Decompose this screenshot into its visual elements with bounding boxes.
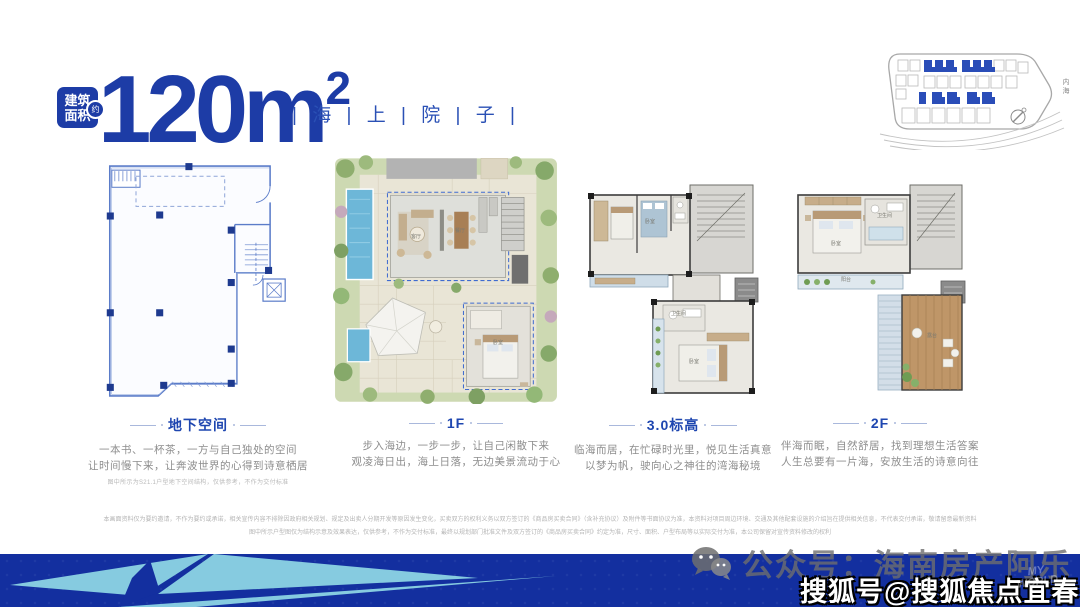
room-label-bath: 卫生间: [671, 311, 686, 317]
wechat-icon: [690, 545, 732, 581]
caption-level3-line1: 临海而居，在忙碌时光里，悦见生活真意: [570, 442, 776, 458]
caption-basement-line1: 一本书、一杯茶，一方与自己独处的空间: [82, 442, 314, 458]
caption-1f-line2: 观凌海日出，海上日落，无边美景流动于心: [340, 454, 572, 470]
caption-basement-title-text: 地下空间: [168, 415, 228, 435]
project-name: | 海 | 上 | 院 | 子 |: [292, 100, 520, 127]
caption-level3-title: 3.0标高: [570, 415, 776, 435]
caption-level3-title-text: 3.0标高: [647, 415, 699, 435]
caption-basement-body: 一本书、一杯茶，一方与自己独处的空间 让时间慢下来，让奔波世界的心得到诗意栖居: [82, 442, 314, 474]
caption-level3-body: 临海而居，在忙碌时光里，悦见生活真意 以梦为帆，驶向心之神往的湾海秘境: [570, 442, 776, 474]
sump-box: [263, 279, 285, 301]
room-label-master-bedroom: 卧室: [831, 241, 841, 247]
caption-2f-line1: 伴海而眠，自然舒居，找到理想生活答案: [772, 438, 988, 454]
area-number: 120m: [98, 56, 324, 163]
sail-logo: [0, 548, 580, 607]
disclaimer-line2: 图中所示户型图仅为结构示意及效果表达，仅供参考，不作为交付标准，最终以规划部门批…: [0, 527, 1080, 539]
room-label-dining: 餐厅: [455, 228, 465, 234]
disclaimer-line1: 本画面资料仅为要约邀请，不作为要约或承诺，相关宣传内容不排除因政府相关规划、规定…: [0, 514, 1080, 526]
caption-2f-title: 2F: [772, 415, 988, 431]
level-3-floorplan: 卧室 卫生间 卧室: [585, 183, 760, 398]
caption-2f-body: 伴海而眠，自然舒居，找到理想生活答案 人生总要有一片海，安放生活的诗意向往: [772, 438, 988, 470]
upper-bedrooms-block: [590, 195, 690, 287]
caption-level3: 3.0标高 临海而居，在忙碌时光里，悦见生活真意 以梦为帆，驶向心之神往的湾海秘…: [570, 415, 776, 474]
site-plan-graphic: [872, 42, 1072, 150]
caption-2f-line2: 人生总要有一片海，安放生活的诗意向往: [772, 454, 988, 470]
room-label-living: 客厅: [411, 234, 421, 240]
stair-block: [690, 185, 753, 273]
lower-bedroom-block: [653, 301, 753, 393]
basement-floorplan: [95, 152, 303, 404]
room-label-bedroom3: 卧室: [689, 359, 699, 365]
room-label-bath-2f: 卫生间: [877, 213, 892, 219]
sea-label: 内海: [1060, 78, 1070, 96]
stairs: [501, 197, 524, 250]
room-label-terrace: 露台: [927, 333, 937, 339]
room-label-bedroom2: 卧室: [645, 219, 655, 225]
caption-1f: 1F 步入海边，一步一步，让自己闲散下来 观凌海日出，海上日落，无边美景流动于心: [340, 415, 572, 470]
area-value: 120m2: [98, 38, 351, 160]
page: 建筑 面积 约 120m2 | 海 | 上 | 院 | 子 |: [0, 0, 1080, 607]
room-label-balcony: 阳台: [841, 277, 851, 283]
stair-block-2f: [910, 185, 962, 269]
master-suite: [798, 195, 910, 289]
room-label-bedroom: 卧室: [493, 340, 503, 346]
corridor: [673, 275, 720, 303]
caption-1f-title: 1F: [340, 415, 572, 431]
caption-2f-title-text: 2F: [871, 415, 889, 431]
second-floor-plan: 卧室 卫生间 阳台 露台: [793, 183, 968, 398]
caption-basement: 地下空间 一本书、一杯茶，一方与自己独处的空间 让时间慢下来，让奔波世界的心得到…: [82, 415, 314, 486]
caption-level3-line2: 以梦为帆，驶向心之神往的湾海秘境: [570, 458, 776, 474]
skylight-strip: [878, 295, 902, 390]
swimming-pool: [346, 189, 373, 279]
site-plan-map: [872, 42, 1072, 150]
ac-platform: [735, 278, 758, 302]
equipment-box: [512, 255, 528, 284]
courtyard-pool: [347, 329, 370, 362]
light-well: [386, 158, 476, 179]
bedroom-block: [463, 303, 533, 389]
caption-basement-line2: 让时间慢下来，让奔波世界的心得到诗意栖居: [82, 458, 314, 474]
area-badge: 建筑 面积 约: [57, 87, 98, 128]
caption-2f: 2F 伴海而眠，自然舒居，找到理想生活答案 人生总要有一片海，安放生活的诗意向往: [772, 415, 988, 470]
caption-basement-note: 图中所示为S21.1户型地下空间结构，仅供参考，不作为交付标准: [82, 477, 314, 486]
living-dining-block: [387, 192, 508, 280]
caption-basement-title: 地下空间: [82, 415, 314, 435]
caption-1f-line1: 步入海边，一步一步，让自己闲散下来: [340, 438, 572, 454]
terrace-deck: [902, 295, 962, 390]
first-floor-plan: 客厅 餐厅 卧室: [333, 152, 559, 404]
caption-1f-body: 步入海边，一步一步，让自己闲散下来 观凌海日出，海上日落，无边美景流动于心: [340, 438, 572, 470]
caption-1f-title-text: 1F: [447, 415, 465, 431]
